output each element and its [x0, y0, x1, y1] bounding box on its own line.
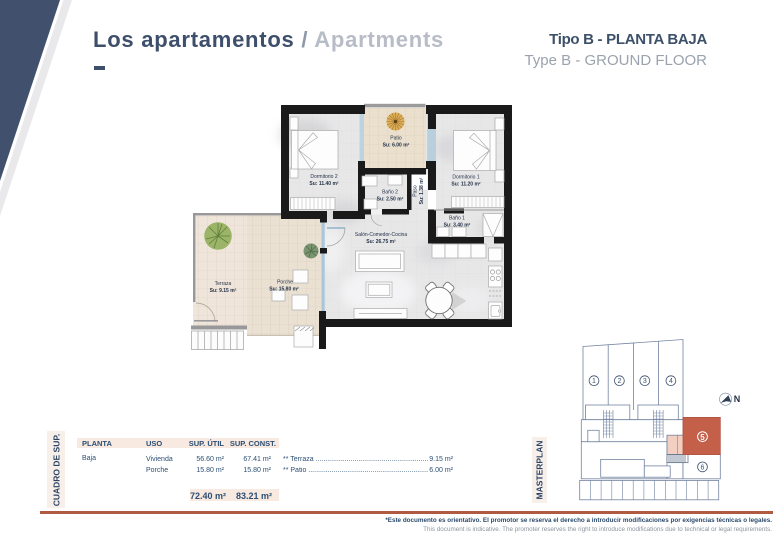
- svg-text:2: 2: [617, 378, 621, 385]
- svg-text:Dormitorio 2: Dormitorio 2: [310, 174, 337, 180]
- svg-text:Su: 15.80 m²: Su: 15.80 m²: [269, 287, 299, 293]
- svg-text:Su: 11.40 m²: Su: 11.40 m²: [309, 181, 339, 187]
- svg-text:Paso: Paso: [413, 185, 419, 197]
- svg-text:Su: 6.00 m²: Su: 6.00 m²: [383, 143, 410, 149]
- svg-text:Su: 11.20 m²: Su: 11.20 m²: [451, 182, 481, 188]
- svg-text:Salón-Comedor-Cocina: Salón-Comedor-Cocina: [355, 232, 407, 238]
- svg-text:1: 1: [592, 378, 596, 385]
- svg-text:4: 4: [669, 378, 673, 385]
- svg-text:Terraza: Terraza: [215, 281, 232, 287]
- svg-text:Su: 2.50 m²: Su: 2.50 m²: [377, 197, 404, 203]
- svg-text:Su: 1.38 m²: Su: 1.38 m²: [419, 177, 425, 204]
- svg-text:6: 6: [701, 464, 705, 471]
- svg-text:Dormitorio 1: Dormitorio 1: [452, 175, 479, 181]
- svg-text:Porche: Porche: [277, 280, 293, 286]
- svg-text:Su: 3.40 m²: Su: 3.40 m²: [444, 223, 471, 229]
- svg-text:5: 5: [700, 433, 705, 442]
- svg-text:3: 3: [643, 378, 647, 385]
- svg-text:Baño 2: Baño 2: [382, 190, 398, 196]
- svg-text:Su: 9.15 m²: Su: 9.15 m²: [210, 288, 237, 294]
- svg-text:Su: 26.75 m²: Su: 26.75 m²: [366, 239, 396, 245]
- svg-text:N: N: [734, 394, 741, 404]
- svg-text:Patio: Patio: [390, 136, 402, 142]
- svg-text:Baño 1: Baño 1: [449, 216, 465, 222]
